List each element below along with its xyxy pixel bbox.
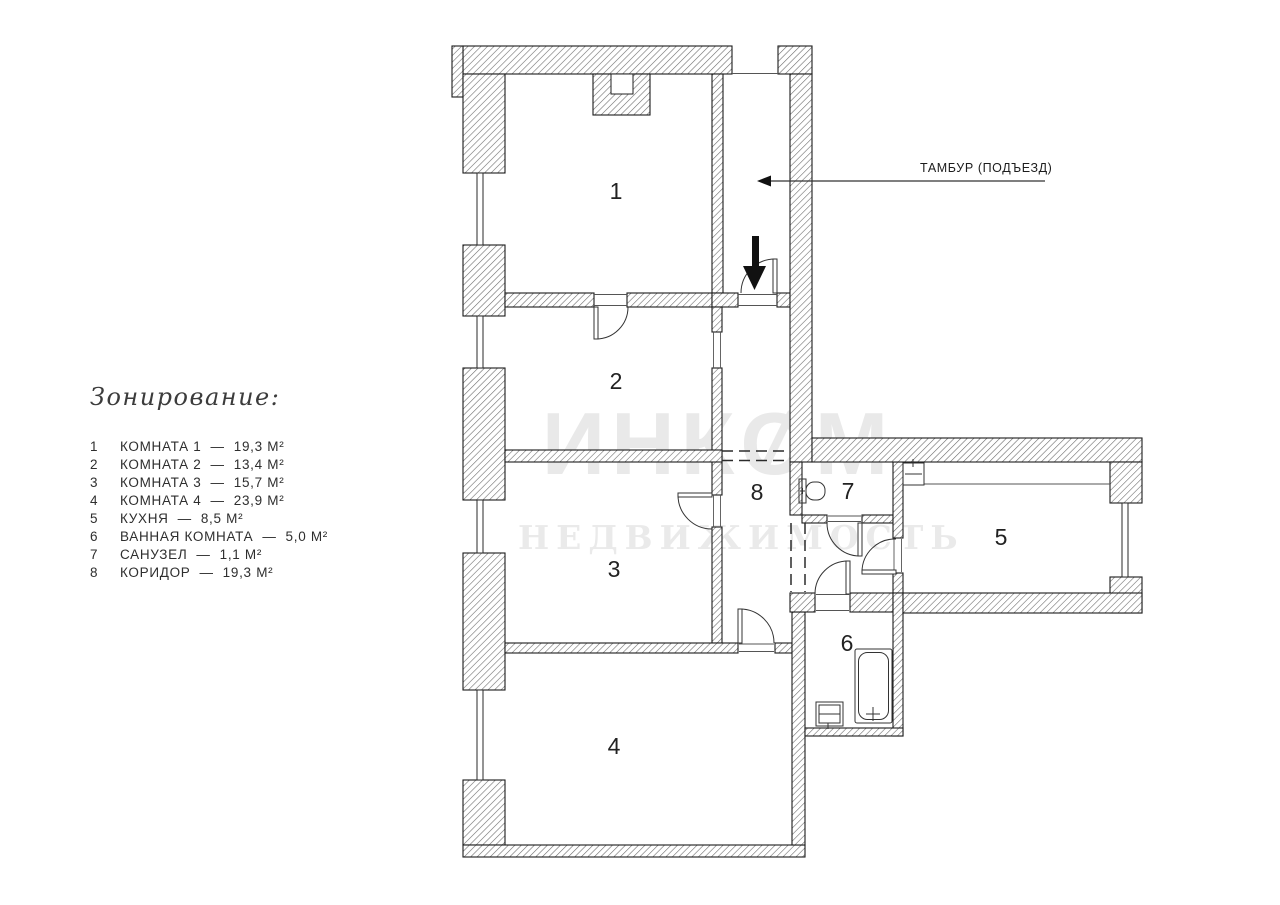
legend-item-area: 23,9 М² xyxy=(234,493,285,508)
legend-item-8: 8 КОРИДОР — 19,3 М² xyxy=(90,564,328,582)
sill-vestibule xyxy=(738,295,777,306)
legend-item-num: 3 xyxy=(90,475,120,490)
sill-kitchen-door xyxy=(894,539,902,572)
entry-arrow-icon xyxy=(743,236,766,290)
legend-item-separator: — xyxy=(211,439,225,454)
room-label-1: 1 xyxy=(610,178,623,204)
legend-item-area: 15,7 М² xyxy=(234,475,285,490)
toilet-icon xyxy=(799,479,825,503)
door-arc-r1-r2 xyxy=(596,307,628,339)
wall-wing-top xyxy=(812,438,1142,462)
sill-room2-opening xyxy=(714,332,721,368)
room-label-4: 4 xyxy=(608,733,621,759)
legend-item-separator: — xyxy=(211,475,225,490)
door-leaf-vestibule xyxy=(773,259,777,293)
wall-right-upper xyxy=(790,74,812,462)
legend-item-4: 4 КОМНАТА 4 — 23,9 М² xyxy=(90,491,328,509)
wall-bath-top-a xyxy=(790,593,815,612)
legend-item-separator: — xyxy=(262,529,276,544)
legend-item-separator: — xyxy=(211,493,225,508)
legend-item-6: 6 ВАННАЯ КОМНАТА — 5,0 М² xyxy=(90,527,328,545)
legend-item-area: 5,0 М² xyxy=(286,529,328,544)
legend-items: 1 КОМНАТА 1 — 19,3 М² 2 КОМНАТА 2 — 13,4… xyxy=(90,437,328,582)
wall-wc-bottom-b xyxy=(862,515,893,523)
wall-left-seg5 xyxy=(463,780,505,845)
legend-item-name: КОМНАТА 1 xyxy=(120,439,202,454)
legend-item-num: 1 xyxy=(90,439,120,454)
wall-wc-left xyxy=(790,462,802,515)
legend-item-area: 1,1 М² xyxy=(220,547,262,562)
door-leaf-bath xyxy=(846,561,850,594)
wall-bath-right xyxy=(893,593,903,736)
wall-r3-r4-b xyxy=(775,643,792,653)
wall-top-left xyxy=(463,46,732,74)
wall-top-step xyxy=(452,46,463,97)
wall-corridor-left-c xyxy=(712,527,722,643)
wall-r1-r2-b xyxy=(627,293,712,307)
wall-left-seg2 xyxy=(463,245,505,316)
legend-item-num: 4 xyxy=(90,493,120,508)
legend-item-name: ВАННАЯ КОМНАТА xyxy=(120,529,253,544)
window-room4 xyxy=(477,690,483,780)
legend: Зонирование: 1 КОМНАТА 1 — 19,3 М² 2 КОМ… xyxy=(90,383,328,582)
room-label-6: 6 xyxy=(841,630,854,656)
legend-item-name: КОМНАТА 3 xyxy=(120,475,202,490)
floor-plan-page: ИНКОМ НЕДВИЖИМОСТЬ xyxy=(0,0,1280,905)
wall-bath-bottom xyxy=(805,728,903,736)
sill-room4-door xyxy=(739,644,774,652)
wall-r2-r3 xyxy=(505,450,722,462)
room-label-2: 2 xyxy=(610,368,623,394)
entry-callout-arrowhead-icon xyxy=(757,176,771,187)
door-leaf-room4 xyxy=(738,609,742,643)
legend-item-5: 5 КУХНЯ — 8,5 М² xyxy=(90,509,328,527)
sill-r1-r2 xyxy=(594,295,627,306)
wall-bath-top-b xyxy=(850,593,893,612)
kitchen-sink-icon xyxy=(903,459,924,485)
window-room2 xyxy=(477,316,483,368)
door-leaf-r1-r2 xyxy=(594,307,598,339)
legend-item-3: 3 КОМНАТА 3 — 15,7 М² xyxy=(90,473,328,491)
door-arc-bath xyxy=(815,561,848,594)
wall-kitchen-right-a xyxy=(1110,462,1142,503)
legend-item-1: 1 КОМНАТА 1 — 19,3 М² xyxy=(90,437,328,455)
duct-notch xyxy=(611,74,633,94)
sill-bath-door xyxy=(816,595,849,611)
bathtub-icon xyxy=(855,649,892,723)
door-arc-kitchen xyxy=(862,539,896,572)
legend-item-area: 13,4 М² xyxy=(234,457,285,472)
legend-item-7: 7 САНУЗЕЛ — 1,1 М² xyxy=(90,546,328,564)
legend-item-area: 19,3 М² xyxy=(234,439,285,454)
room-label-8: 8 xyxy=(751,479,764,505)
bathroom-sink-icon xyxy=(816,702,843,729)
door-leaf-kitchen xyxy=(862,570,896,574)
door-arc-room4 xyxy=(740,609,774,643)
wall-corridor-left-a xyxy=(712,307,722,332)
wall-left-seg4 xyxy=(463,553,505,690)
wall-vest-corr-a xyxy=(712,293,738,307)
wall-wc-kitchen-b xyxy=(893,573,903,593)
legend-item-separator: — xyxy=(196,547,210,562)
legend-item-separator: — xyxy=(211,457,225,472)
sill-wc-door xyxy=(828,516,861,522)
room-label-7: 7 xyxy=(842,478,855,504)
entry-label: ТАМБУР (ПОДЪЕЗД) xyxy=(920,161,1052,175)
legend-item-num: 5 xyxy=(90,511,120,526)
legend-item-name: КУХНЯ xyxy=(120,511,169,526)
room-label-3: 3 xyxy=(608,556,621,582)
wall-wc-bottom-a xyxy=(802,515,827,523)
wall-right-lower xyxy=(792,612,805,845)
wall-kitchen-bottom xyxy=(903,593,1142,613)
wall-wc-kitchen-a xyxy=(893,462,903,538)
legend-item-name: КОМНАТА 4 xyxy=(120,493,202,508)
door-leaf-room3 xyxy=(678,493,712,497)
legend-item-name: КОМНАТА 2 xyxy=(120,457,202,472)
wall-left-seg3 xyxy=(463,368,505,500)
wall-r1-r2-a xyxy=(505,293,594,307)
wall-bottom xyxy=(463,845,805,857)
wall-vestibule-left xyxy=(712,74,723,293)
legend-item-num: 2 xyxy=(90,457,120,472)
legend-item-num: 7 xyxy=(90,547,120,562)
wall-left-seg1 xyxy=(463,74,505,173)
legend-item-name: САНУЗЕЛ xyxy=(120,547,187,562)
wall-r3-r4-a xyxy=(505,643,738,653)
legend-item-num: 8 xyxy=(90,565,120,580)
window-kitchen xyxy=(1122,503,1128,577)
window-room1 xyxy=(477,173,483,245)
sill-room3-door xyxy=(714,495,721,527)
legend-item-area: 19,3 М² xyxy=(223,565,274,580)
door-leaf-wc xyxy=(858,523,862,556)
legend-item-area: 8,5 М² xyxy=(201,511,243,526)
legend-item-2: 2 КОМНАТА 2 — 13,4 М² xyxy=(90,455,328,473)
legend-item-separator: — xyxy=(199,565,213,580)
legend-item-num: 6 xyxy=(90,529,120,544)
room-label-5: 5 xyxy=(995,524,1008,550)
wall-top-right xyxy=(778,46,812,74)
window-room3 xyxy=(477,500,483,553)
legend-title: Зонирование: xyxy=(90,383,328,411)
legend-item-name: КОРИДОР xyxy=(120,565,190,580)
wall-corridor-left-b xyxy=(712,368,722,495)
door-arc-wc xyxy=(827,523,860,556)
door-arc-room3 xyxy=(678,495,712,529)
wall-vest-corr-b xyxy=(777,293,790,307)
legend-item-separator: — xyxy=(178,511,192,526)
